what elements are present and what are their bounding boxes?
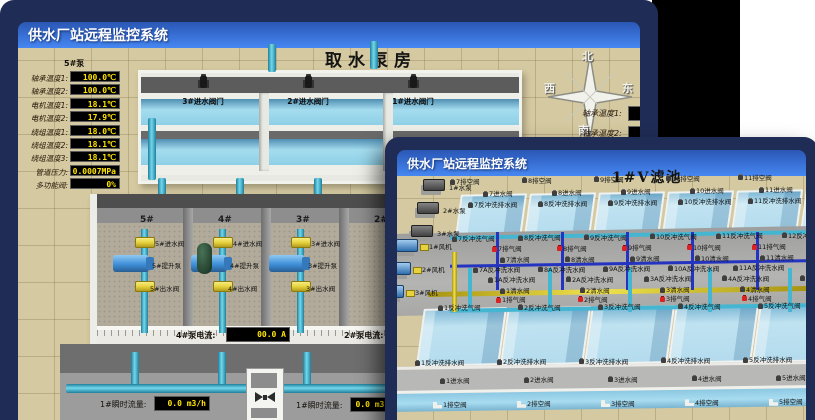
valve[interactable]: 9进水阀 <box>621 186 651 196</box>
filter-scene: 1#V滤池 <box>397 150 806 420</box>
valve[interactable]: 3A反冲洗水阀 <box>644 273 691 283</box>
valve[interactable]: 8排气阀 <box>557 243 587 253</box>
valve[interactable]: 7清水阀 <box>500 254 530 264</box>
valve[interactable]: 11A反冲洗水阀 <box>733 262 784 272</box>
backwash-blower[interactable]: 3#风机 <box>397 282 444 302</box>
valve[interactable]: 5排空阀 <box>769 396 803 406</box>
valve[interactable]: 8反冲洗排水阀 <box>538 198 587 208</box>
valve[interactable]: 7反冲洗排水阀 <box>468 199 517 209</box>
pump4-current-label: 4#泵电流: <box>176 330 215 341</box>
valve[interactable]: 3排空阀 <box>601 398 635 408</box>
desktop-black-area <box>652 0 740 139</box>
valve[interactable]: 2进水阀 <box>524 374 554 384</box>
cell-pipe <box>561 232 564 290</box>
telemetry-label: 多功能阀: <box>24 180 68 191</box>
riser-pipe <box>370 41 378 69</box>
valve[interactable]: 10反冲洗排水阀 <box>678 196 731 206</box>
blower-valve-icon <box>413 267 422 274</box>
valve[interactable]: 2排空阀 <box>517 398 551 408</box>
pump-icon <box>423 179 445 191</box>
telemetry-label: 电机温度1: <box>24 100 68 111</box>
pump5-panel-header: 5#泵 <box>64 58 84 69</box>
telemetry-label: 轴承温度1: <box>24 73 68 84</box>
inlet-valve-label: 3#进水阀 <box>311 238 340 248</box>
telemetry-row: 轴承温度1: 100.0℃ <box>24 71 124 83</box>
valve[interactable]: 8排空阀 <box>522 175 552 185</box>
valve[interactable]: 4反冲洗气阀 <box>678 301 721 311</box>
riser-pipe <box>148 118 156 180</box>
valve[interactable]: 3进水阀 <box>608 374 638 384</box>
intake-valve-label: 2#进水阀门 <box>287 97 329 106</box>
branch-pipe <box>131 352 139 386</box>
valve[interactable]: 9排气阀 <box>622 242 652 252</box>
telemetry-label: 管道压力: <box>24 167 68 178</box>
valve[interactable]: 12反冲洗气阀 <box>782 230 806 240</box>
telemetry-row: 绕组温度3: 18.1℃ <box>24 151 124 163</box>
telemetry-row: 轴承温度2: 100.0℃ <box>24 84 124 96</box>
valve[interactable]: 10排气阀 <box>687 242 721 252</box>
outlet-valve-label: 3#出水阀 <box>306 283 335 293</box>
valve[interactable]: 11反冲洗排水阀 <box>748 195 801 205</box>
intake-valve-label: 3#进水阀门 <box>182 97 224 106</box>
telemetry-led-value: 18.1℃ <box>70 151 120 162</box>
intake-valve-label: 1#进水阀门 <box>392 97 434 106</box>
compass-east-label: 东 <box>622 80 633 96</box>
valve[interactable]: 11排空阀 <box>738 172 772 182</box>
lift-pump-label: 4#提升泵 <box>230 260 259 270</box>
valve[interactable]: 8A反冲洗水阀 <box>538 264 585 274</box>
intake-valve[interactable]: 2#进水阀门 <box>271 76 345 108</box>
valve[interactable]: 9清水阀 <box>630 253 660 263</box>
valve[interactable]: 1排空阀 <box>433 399 467 409</box>
valve[interactable]: 4排空阀 <box>685 397 719 407</box>
valve[interactable]: 2反冲洗气阀 <box>518 302 561 312</box>
compass-west-label: 西 <box>544 80 555 96</box>
telemetry-row: 电机温度2: 17.9℃ <box>24 111 124 123</box>
valve[interactable]: 7反冲洗气阀 <box>452 233 495 243</box>
blower-icon <box>397 285 404 298</box>
valve[interactable]: 11清水阀 <box>760 252 794 262</box>
valve[interactable]: 1反冲洗排水阀 <box>415 357 464 367</box>
branch-pipe <box>303 352 311 386</box>
intake-valve[interactable]: 3#进水阀门 <box>166 76 240 108</box>
backwash-blower[interactable]: 2#风机 <box>397 259 451 279</box>
blower-icon <box>397 239 418 252</box>
valve[interactable]: 8反冲洗气阀 <box>518 232 561 242</box>
flow-meter-icon[interactable] <box>246 368 284 420</box>
telemetry-label: 绕组温度2: <box>24 140 68 151</box>
inlet-valve-label: 4#进水阀 <box>233 238 262 248</box>
valve[interactable]: 10清水阀 <box>695 253 729 263</box>
telemetry-label: 绕组温度1: <box>24 127 68 138</box>
valve[interactable]: 11排气阀 <box>752 241 786 251</box>
valve[interactable]: 8进水阀 <box>552 187 582 197</box>
telemetry-label: 电机温度2: <box>24 113 68 124</box>
intake-valve[interactable]: 1#进水阀门 <box>376 76 450 108</box>
valve[interactable]: 11反冲洗气阀 <box>716 230 763 240</box>
valve[interactable]: 10A反冲洗水阀 <box>668 263 719 273</box>
telemetry-led-value: 100.0℃ <box>70 71 120 82</box>
valve[interactable]: 10进水阀 <box>690 185 724 195</box>
bay-number: 4# <box>218 215 232 225</box>
telemetry-label: 轴承温度2: <box>24 86 68 97</box>
telemetry-row: 绕组温度2: 18.1℃ <box>24 138 124 150</box>
valve[interactable]: 3反冲洗气阀 <box>598 301 641 311</box>
outlet-valve-label: 5#出水阀 <box>150 283 179 293</box>
inlet-valve-icon[interactable] <box>135 237 155 248</box>
valve[interactable]: 7排空阀 <box>450 176 480 186</box>
valve[interactable]: 11进水阀 <box>759 184 793 194</box>
telemetry-led-value: 17.9℃ <box>70 111 120 122</box>
blower-icon <box>397 262 411 275</box>
valve[interactable]: 10排空阀 <box>666 173 700 183</box>
valve[interactable]: 7排气阀 <box>492 243 522 253</box>
valve[interactable]: 9排空阀 <box>594 174 624 184</box>
telemetry-led-value: 18.1℃ <box>70 138 120 149</box>
valve[interactable]: 1进水阀 <box>440 375 470 385</box>
telemetry-led-value: 0% <box>70 178 120 189</box>
valve[interactable]: 2反冲洗排水阀 <box>497 356 546 366</box>
valve[interactable]: 9反冲洗气阀 <box>584 232 627 242</box>
telemetry-led-value: 18.0℃ <box>70 125 120 136</box>
telemetry-row: 电机温度1: 18.1℃ <box>24 98 124 110</box>
lift-pump-label: 3#提升泵 <box>308 260 337 270</box>
flow-left-led: 0.0 m3/h <box>154 396 210 411</box>
bay-number: 3# <box>296 215 310 225</box>
multifunction-valve-tank[interactable] <box>197 243 212 274</box>
backwash-blower[interactable]: 1#风机 <box>397 236 458 256</box>
valve[interactable]: 7进水阀 <box>483 188 513 198</box>
valve[interactable]: 8清水阀 <box>565 254 595 264</box>
flow-right-label: 1#瞬时流量: <box>296 400 343 411</box>
blower-valve-icon <box>420 244 429 251</box>
valve[interactable]: 5反冲洗排水阀 <box>743 354 792 364</box>
lift-pump-icon[interactable] <box>269 255 305 272</box>
flow-left-label: 1#瞬时流量: <box>100 399 147 410</box>
valve[interactable]: 7A反冲洗水阀 <box>473 264 520 274</box>
inlet-valve-icon[interactable] <box>291 237 311 248</box>
bay-number: 5# <box>140 215 154 225</box>
valve[interactable]: 1反冲洗气阀 <box>438 302 481 312</box>
front-window-panel: 供水厂站远程监控系统 1#V滤池 <box>397 150 806 420</box>
lift-pump-label: 5#提升泵 <box>152 260 181 270</box>
valve[interactable]: 9反冲洗排水阀 <box>608 197 657 207</box>
valve[interactable]: 3反冲洗排水阀 <box>579 356 628 366</box>
telemetry-row: 多功能阀: 0% <box>24 178 124 190</box>
valve[interactable]: 4反冲洗排水阀 <box>661 355 710 365</box>
blower-valve-icon <box>406 290 415 297</box>
valve[interactable]: 10反冲洗气阀 <box>650 231 697 241</box>
valve[interactable]: 1A反冲洗水阀 <box>488 274 535 284</box>
pump-label: 2#水泵 <box>443 205 466 215</box>
compass-north-label: 北 <box>582 48 593 64</box>
telemetry-led-value: 18.1℃ <box>70 98 120 109</box>
desktop: 供水厂站远程监控系统 取水泵房 北 西 南 东 5#泵 <box>0 0 815 420</box>
pump4-current-led: 00.0 A <box>226 327 290 342</box>
riser-pipe <box>268 44 276 72</box>
outlet-valve-label: 4#出水阀 <box>228 283 257 293</box>
telemetry-led-value: 100.0℃ <box>70 84 120 95</box>
valve[interactable]: 5反冲洗气阀 <box>758 300 801 310</box>
telemetry-label: 轴承温度1: <box>582 108 622 119</box>
valve[interactable]: 5A反冲洗水阀 <box>800 272 806 282</box>
telemetry-label: 绕组温度3: <box>24 153 68 164</box>
telemetry-row: 绕组温度1: 18.0℃ <box>24 125 124 137</box>
blower-label: 3#风机 <box>415 287 438 297</box>
inlet-valve-icon[interactable] <box>213 237 233 248</box>
valve[interactable]: 4A反冲洗水阀 <box>722 273 769 283</box>
blower-label: 1#风机 <box>429 241 452 251</box>
lift-pump-icon[interactable] <box>113 255 149 272</box>
valve[interactable]: 9A反冲洗水阀 <box>603 263 650 273</box>
valve[interactable]: 4进水阀 <box>692 373 722 383</box>
pump-icon <box>417 202 439 214</box>
telemetry-led-value: 0.0007MPa <box>70 165 120 176</box>
pump2-current-label: 2#泵电流: <box>344 330 383 341</box>
blower-label: 2#风机 <box>422 264 445 274</box>
branch-pipe <box>218 352 226 386</box>
front-window-filter[interactable]: 供水厂站远程监控系统 1#V滤池 <box>385 137 815 420</box>
telemetry-row: 管道压力: 0.0007MPa <box>24 165 124 177</box>
valve[interactable]: 2A反冲洗水阀 <box>566 274 613 284</box>
pump-bay: 3#进水阀 3#提升泵 3#出水阀 <box>269 233 345 333</box>
valve[interactable]: 5进水阀 <box>776 372 806 382</box>
inlet-valve-label: 5#进水阀 <box>155 238 184 248</box>
pump-bay: 5#进水阀 5#提升泵 5#出水阀 <box>113 233 189 333</box>
